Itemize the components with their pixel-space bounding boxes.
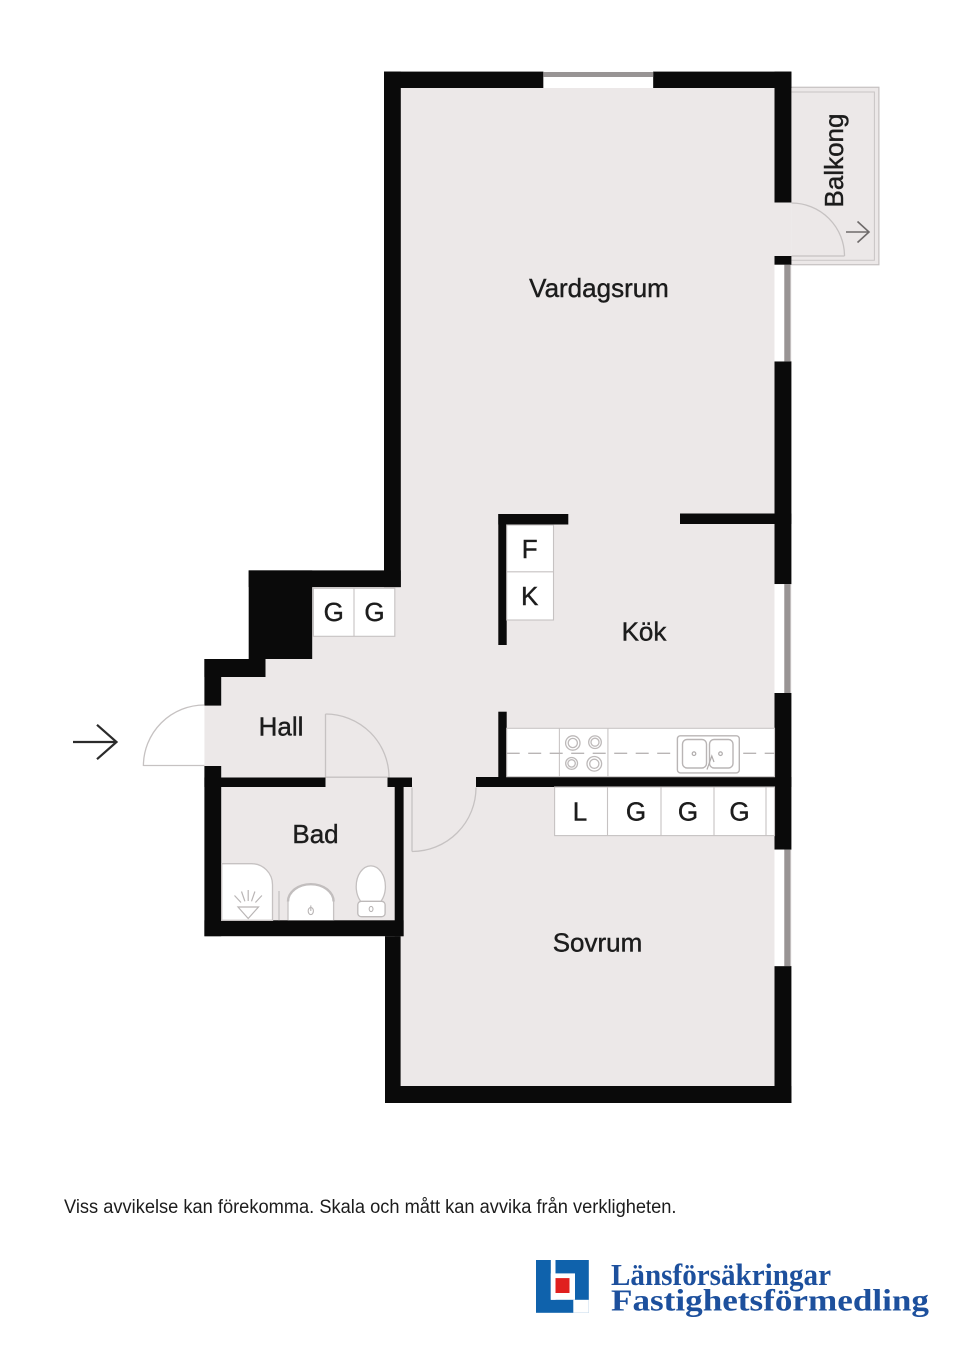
svg-text:K: K: [521, 581, 539, 611]
svg-text:Fastighetsförmedling: Fastighetsförmedling: [611, 1284, 929, 1318]
svg-text:Viss avvikelse kan förekomma.: Viss avvikelse kan förekomma. Skala och …: [64, 1197, 677, 1218]
svg-text:Hall: Hall: [259, 712, 304, 742]
svg-text:F: F: [522, 534, 538, 564]
svg-text:G: G: [678, 797, 698, 827]
svg-text:Vardagsrum: Vardagsrum: [529, 273, 669, 303]
svg-text:G: G: [364, 597, 384, 627]
svg-text:L: L: [573, 797, 587, 827]
svg-text:G: G: [324, 597, 344, 627]
svg-text:G: G: [729, 797, 749, 827]
svg-text:Sovrum: Sovrum: [553, 928, 643, 958]
svg-text:Balkong: Balkong: [819, 114, 849, 208]
svg-text:Kök: Kök: [622, 617, 668, 647]
svg-text:Bad: Bad: [292, 819, 338, 849]
svg-text:G: G: [626, 797, 646, 827]
